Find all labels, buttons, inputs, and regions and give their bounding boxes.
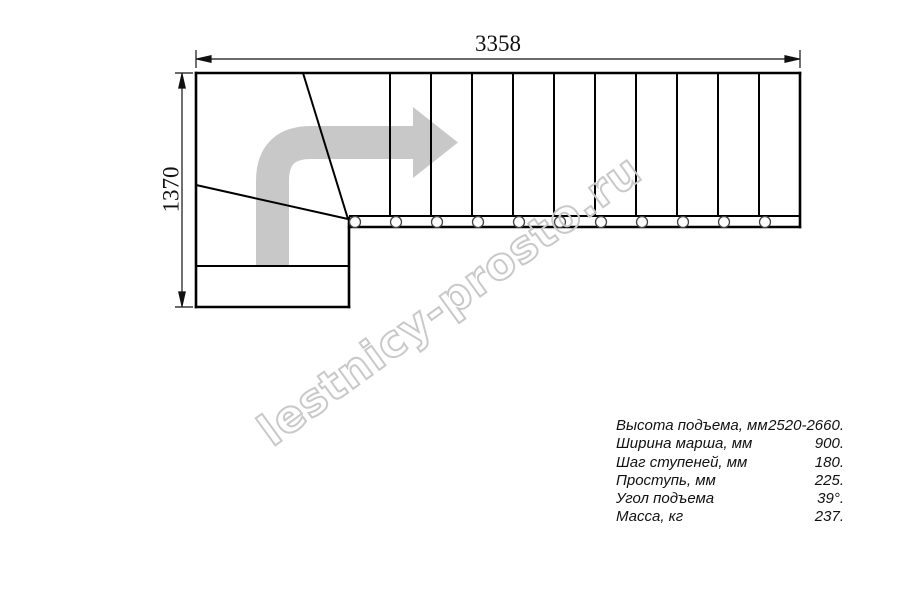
spec-value: 2520-2660. [768,417,844,435]
spec-label: Высота подъема, мм [616,417,768,435]
dimension-label-depth: 1370 [159,160,182,220]
baluster-circle [514,217,525,228]
baluster-circle [760,217,771,228]
spec-value: 237. [815,508,844,526]
baluster-circle [555,217,566,228]
spec-row-mass: Масса, кг 237. [616,508,844,526]
baluster-circle [391,217,402,228]
baluster-circle [596,217,607,228]
baluster-circle [473,217,484,228]
baluster-circle [350,217,361,228]
spec-row-step-rise: Шаг ступеней, мм 180. [616,454,844,472]
dim-arrow-right [785,56,799,62]
spec-label: Проступь, мм [616,472,716,490]
staircase-drawing-page: lestnicy-prosto.ru [0,0,900,600]
spec-row-flight-width: Ширина марша, мм 900. [616,435,844,453]
spec-value: 39°. [817,490,844,508]
spec-value: 900. [815,435,844,453]
baluster-circle [637,217,648,228]
direction-arrow-head [413,107,458,178]
spec-label: Угол подъема [616,490,714,508]
spec-row-height: Высота подъема, мм 2520-2660. [616,417,844,435]
spec-label: Масса, кг [616,508,683,526]
spec-row-climb-angle: Угол подъема 39°. [616,490,844,508]
baluster-circle [719,217,730,228]
dim-arrow-left [197,56,211,62]
spec-label: Шаг ступеней, мм [616,454,747,472]
spec-row-tread-depth: Проступь, мм 225. [616,472,844,490]
spec-value: 225. [815,472,844,490]
dimension-label-length: 3358 [468,31,528,57]
dim-arrow-up [179,74,185,88]
baluster-circle [678,217,689,228]
spec-value: 180. [815,454,844,472]
dim-arrow-down [179,292,185,306]
spec-table: Высота подъема, мм 2520-2660. Ширина мар… [616,417,844,527]
baluster-circle [432,217,443,228]
spec-label: Ширина марша, мм [616,435,752,453]
